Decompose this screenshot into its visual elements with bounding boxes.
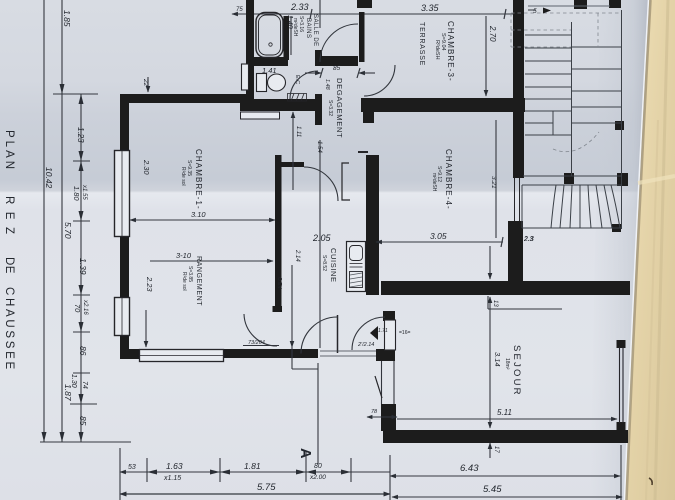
svg-text:3.05: 3.05 (430, 231, 447, 241)
svg-text:22: 22 (142, 78, 149, 87)
svg-text:85: 85 (78, 416, 88, 426)
svg-text:A: A (297, 448, 313, 459)
svg-text:70: 70 (73, 304, 82, 313)
svg-text:1.41: 1.41 (262, 66, 277, 75)
svg-text:2'/2.14: 2'/2.14 (357, 342, 374, 348)
svg-text:1.30: 1.30 (70, 374, 77, 388)
svg-text:3.14: 3.14 (493, 352, 502, 367)
svg-text:TERRASSE: TERRASSE (418, 22, 425, 66)
svg-text:BAINS: BAINS (305, 18, 311, 39)
svg-text:80: 80 (314, 463, 322, 470)
svg-text:=16=: =16= (399, 330, 410, 336)
svg-text:CHAMBRE-1-: CHAMBRE-1- (194, 149, 203, 210)
svg-text:78: 78 (371, 409, 378, 415)
svg-text:SEJOUR: SEJOUR (511, 345, 522, 397)
svg-text:3.10: 3.10 (191, 210, 206, 219)
svg-text:2.14: 2.14 (294, 249, 300, 262)
svg-text:SALLE DE: SALLE DE (312, 14, 318, 47)
svg-text:5.75: 5.75 (257, 482, 276, 493)
svg-text:REZ: REZ (3, 196, 15, 242)
svg-text:CUISINE: CUISINE (329, 248, 338, 283)
svg-text:1.11: 1.11 (295, 126, 301, 137)
svg-text:13: 13 (492, 300, 498, 307)
svg-text:1.85: 1.85 (62, 10, 72, 27)
svg-text:10.42: 10.42 (44, 167, 54, 189)
svg-text:1.63: 1.63 (166, 461, 183, 471)
svg-text:2.3: 2.3 (523, 236, 533, 243)
svg-text:PLAN: PLAN (3, 130, 15, 172)
svg-text:x1.55: x1.55 (81, 184, 87, 200)
svg-text:5.45: 5.45 (483, 484, 502, 495)
svg-text:R²deSH: R²deSH (434, 40, 440, 60)
svg-text:1.54: 1.54 (316, 141, 322, 153)
svg-text:2.30: 2.30 (142, 159, 151, 175)
svg-text:1.48: 1.48 (324, 79, 330, 91)
svg-text:1.23: 1.23 (76, 127, 85, 143)
svg-text:75: 75 (236, 7, 243, 13)
svg-text:86: 86 (78, 346, 88, 356)
svg-text:1.80: 1.80 (72, 186, 81, 201)
svg-text:CHAUSSEE: CHAUSSEE (3, 287, 15, 372)
svg-text:1.81: 1.81 (244, 461, 261, 471)
svg-text:DE: DE (3, 257, 15, 274)
svg-text:S=3.32: S=3.32 (327, 100, 333, 116)
svg-text:3.21: 3.21 (490, 176, 497, 189)
svg-text:3.35: 3.35 (421, 3, 440, 13)
svg-text:CHAMBRE-4-: CHAMBRE-4- (444, 149, 453, 210)
svg-text:5.11: 5.11 (497, 408, 512, 417)
svg-text:O.EV: O.EV (276, 277, 282, 290)
svg-text:18m²: 18m² (504, 358, 510, 370)
svg-text:53: 53 (128, 464, 136, 471)
svg-text:2.05: 2.05 (312, 233, 332, 243)
svg-text:CHAMBRE-3-: CHAMBRE-3- (446, 21, 455, 82)
svg-text:85: 85 (333, 65, 341, 72)
svg-text:m²deSH: m²deSH (292, 18, 298, 37)
svg-text:DEGAGEMENT: DEGAGEMENT (335, 78, 344, 138)
svg-text:73/204: 73/204 (248, 340, 265, 346)
svg-text:6.43: 6.43 (460, 463, 479, 474)
svg-text:74: 74 (81, 381, 88, 389)
svg-text:E.C: E.C (294, 75, 300, 84)
svg-text:3-10: 3-10 (176, 251, 192, 260)
svg-text:2.23: 2.23 (145, 276, 154, 292)
svg-text:1.39: 1.39 (78, 258, 88, 275)
svg-text:5: 5 (533, 8, 537, 15)
svg-text:2.70: 2.70 (488, 25, 497, 42)
svg-text:x1.15: x1.15 (163, 475, 181, 482)
svg-text:5.70: 5.70 (63, 222, 73, 239)
svg-text:RANGEMENT: RANGEMENT (195, 256, 202, 306)
svg-text:R²de sol: R²de sol (181, 272, 187, 291)
svg-text:R²de sol: R²de sol (180, 167, 186, 186)
svg-text:m²deSH: m²deSH (431, 173, 437, 192)
svg-text:x2.16: x2.16 (82, 299, 88, 315)
svg-text:x2.00: x2.00 (309, 474, 326, 481)
svg-text:1.71: 1.71 (378, 328, 388, 334)
svg-text:2.33: 2.33 (290, 2, 309, 12)
svg-text:17: 17 (493, 446, 499, 453)
svg-text:S=8.52: S=8.52 (321, 255, 327, 271)
